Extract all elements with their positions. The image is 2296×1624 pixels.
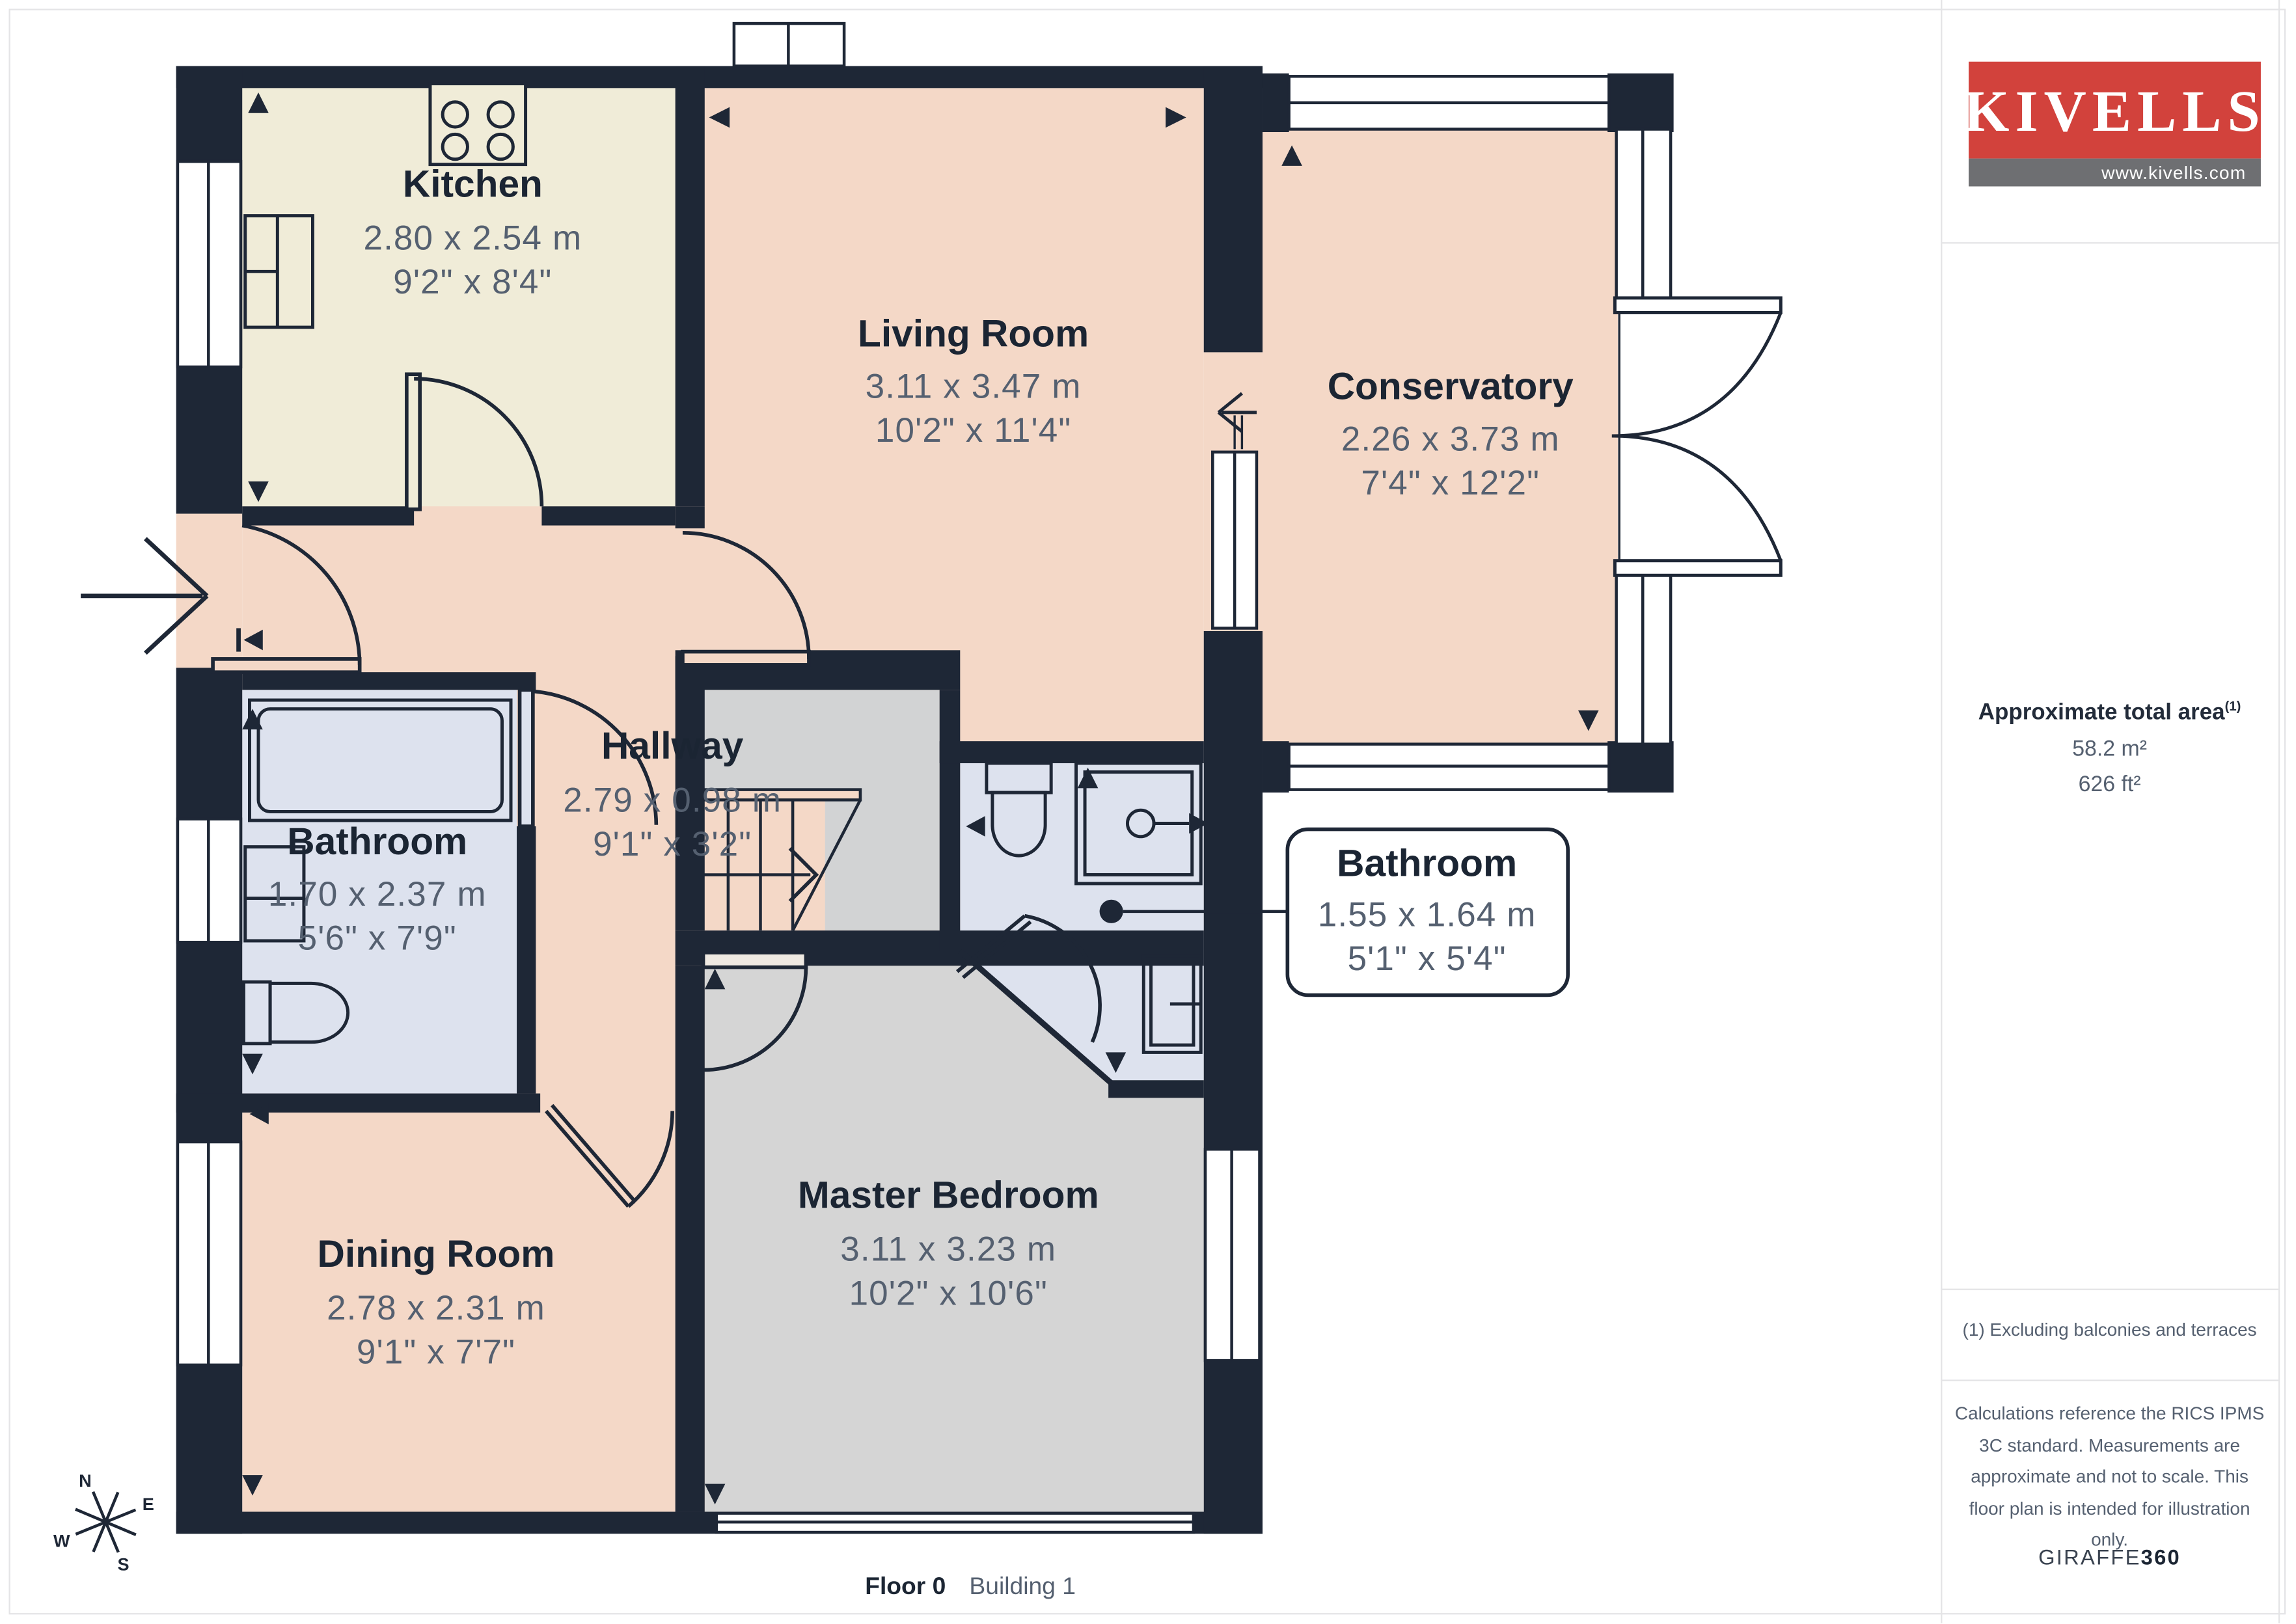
svg-text:10'2" x 10'6": 10'2" x 10'6" bbox=[849, 1274, 1048, 1312]
window-bedroom-bottom bbox=[717, 1513, 1194, 1532]
disclaimer-line: 3C standard. Measurements are bbox=[1944, 1430, 2276, 1462]
disclaimer: Calculations reference the RICS IPMS 3C … bbox=[1944, 1399, 2276, 1558]
total-area-metric: 58.2 m² bbox=[1941, 737, 2278, 762]
floor-caption: Floor 0Building 1 bbox=[0, 1573, 1941, 1601]
svg-text:7'4" x 12'2": 7'4" x 12'2" bbox=[1361, 464, 1540, 502]
window-conservatory-right-lower bbox=[1617, 573, 1671, 744]
total-area-title: Approximate total area(1) bbox=[1941, 699, 2278, 727]
svg-text:10'2" x 11'4": 10'2" x 11'4" bbox=[875, 411, 1071, 450]
sidebar-divider-2 bbox=[1941, 1289, 2278, 1290]
svg-text:Master Bedroom: Master Bedroom bbox=[798, 1174, 1099, 1217]
window-conservatory-right-upper bbox=[1617, 129, 1671, 301]
total-area-block: Approximate total area(1) 58.2 m² 626 ft… bbox=[1941, 699, 2278, 797]
svg-text:1.70 x 2.37 m: 1.70 x 2.37 m bbox=[268, 875, 487, 913]
giraffe360-brand: GIRAFFE360 bbox=[1941, 1547, 2278, 1571]
svg-text:9'1" x 7'7": 9'1" x 7'7" bbox=[357, 1333, 515, 1372]
svg-text:3.11 x 3.47 m: 3.11 x 3.47 m bbox=[866, 367, 1082, 405]
svg-text:2.80 x 2.54 m: 2.80 x 2.54 m bbox=[363, 219, 582, 257]
window-bedroom-right bbox=[1205, 1149, 1259, 1360]
giraffe-360-text: 360 bbox=[2141, 1547, 2181, 1571]
kivells-logo: KIVELLS www.kivells.com bbox=[1969, 62, 2261, 187]
svg-text:5'6" x 7'9": 5'6" x 7'9" bbox=[298, 919, 457, 958]
sidebar-divider-3 bbox=[1941, 1379, 2278, 1381]
svg-text:Kitchen: Kitchen bbox=[403, 163, 543, 205]
compass-icon: N E S W bbox=[53, 1471, 154, 1575]
svg-text:9'2" x 8'4": 9'2" x 8'4" bbox=[393, 263, 552, 301]
svg-text:Bathroom: Bathroom bbox=[287, 820, 467, 863]
svg-text:Dining Room: Dining Room bbox=[318, 1233, 555, 1275]
svg-text:Living Room: Living Room bbox=[858, 312, 1089, 355]
room-dim-metric: 1.55 x 1.64 m bbox=[1318, 895, 1537, 934]
window-bathroom-left bbox=[178, 819, 241, 942]
compass-n: N bbox=[79, 1471, 92, 1491]
disclaimer-line: approximate and not to scale. This bbox=[1944, 1462, 2276, 1494]
svg-text:3.11 x 3.23 m: 3.11 x 3.23 m bbox=[840, 1230, 1056, 1269]
floor-label: Floor 0 bbox=[865, 1573, 946, 1600]
svg-text:9'1" x 3'2": 9'1" x 3'2" bbox=[593, 825, 752, 863]
compass-s: S bbox=[117, 1555, 129, 1575]
disclaimer-line: floor plan is intended for illustration bbox=[1944, 1494, 2276, 1526]
compass-e: E bbox=[143, 1495, 154, 1514]
kivells-logo-website: www.kivells.com bbox=[1969, 159, 2261, 187]
room-label-conservatory: Conservatory 2.26 x 3.73 m 7'4" x 12'2" bbox=[1328, 366, 1574, 503]
disclaimer-line: Calculations reference the RICS IPMS bbox=[1944, 1399, 2276, 1431]
conservatory-french-doors bbox=[1612, 298, 1781, 575]
svg-text:2.26 x 3.73 m: 2.26 x 3.73 m bbox=[1341, 420, 1560, 459]
window-conservatory-bottom bbox=[1289, 744, 1609, 790]
room-label-bathroom-left: Bathroom 1.70 x 2.37 m 5'6" x 7'9" bbox=[268, 820, 487, 958]
stove-icon bbox=[430, 84, 526, 165]
svg-text:2.79 x 0.98 m: 2.79 x 0.98 m bbox=[563, 781, 782, 819]
total-area-imperial: 626 ft² bbox=[1941, 772, 2278, 797]
window-dining-left bbox=[178, 1142, 241, 1365]
total-area-superscript: (1) bbox=[2225, 699, 2241, 714]
total-area-title-text: Approximate total area bbox=[1978, 700, 2225, 725]
svg-text:2.78 x 2.31 m: 2.78 x 2.31 m bbox=[327, 1289, 545, 1327]
floorplan-page: Bathroom 1.55 x 1.64 m 5'1" x 5'4" Kitch… bbox=[0, 0, 2296, 1624]
footnote: (1) Excluding balconies and terraces bbox=[1941, 1319, 2278, 1340]
room-dim-imperial: 5'1" x 5'4" bbox=[1348, 940, 1507, 978]
kivells-logo-brand: KIVELLS bbox=[1969, 62, 2261, 159]
room-label-bathroom-right: Bathroom bbox=[1337, 843, 1517, 885]
entrance-opening-fill bbox=[176, 514, 243, 668]
giraffe-text: GIRAFFE bbox=[2038, 1547, 2141, 1571]
window-kitchen-left bbox=[178, 161, 241, 367]
sidebar-divider-1 bbox=[1941, 242, 2278, 243]
callout-anchor-dot bbox=[1100, 900, 1123, 923]
sidebar-right-divider bbox=[2278, 0, 2280, 1623]
sliding-door-track bbox=[1212, 452, 1257, 629]
window-conservatory-top bbox=[1289, 76, 1609, 129]
compass-w: W bbox=[53, 1532, 70, 1551]
svg-text:Conservatory: Conservatory bbox=[1328, 366, 1574, 408]
svg-text:Hallway: Hallway bbox=[601, 725, 744, 767]
room-label-living-room: Living Room 3.11 x 3.47 m 10'2" x 11'4" bbox=[858, 312, 1089, 450]
chimney bbox=[734, 23, 844, 66]
building-label: Building 1 bbox=[969, 1573, 1076, 1600]
